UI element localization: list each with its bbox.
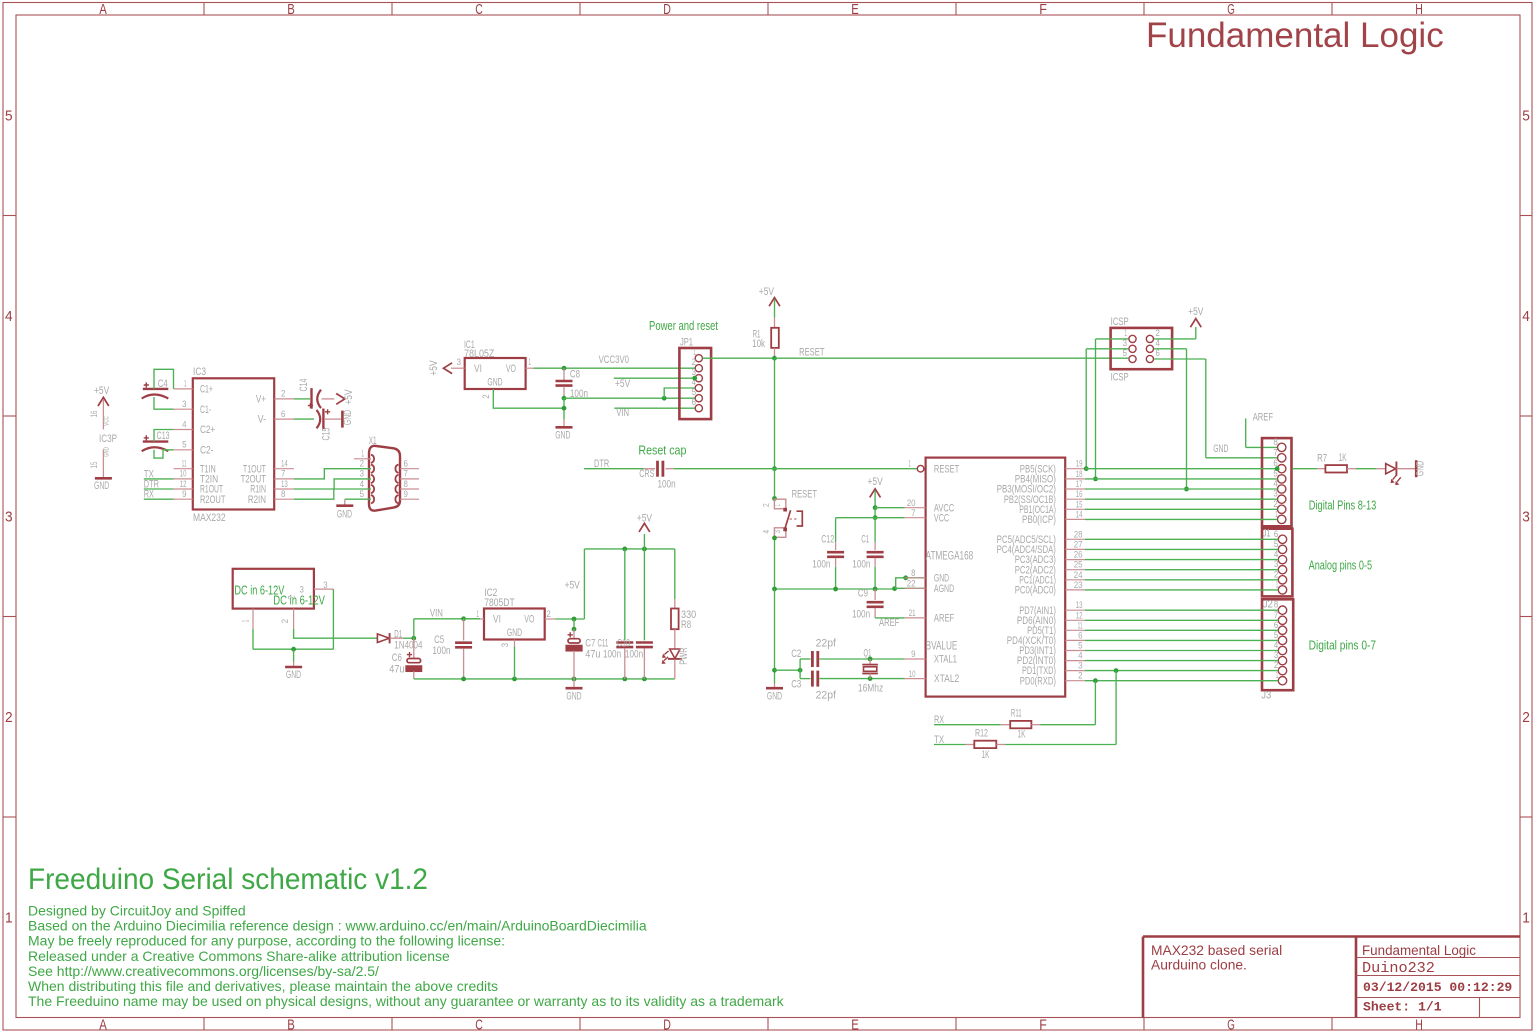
svg-text:4: 4	[762, 529, 771, 533]
svg-text:XTAL1: XTAL1	[934, 654, 957, 666]
svg-text:F: F	[1039, 1, 1047, 18]
svg-text:B: B	[287, 1016, 295, 1033]
svg-text:MAX232: MAX232	[193, 512, 226, 524]
svg-text:C12: C12	[821, 534, 834, 546]
svg-text:VIN: VIN	[616, 407, 629, 419]
svg-text:1K: 1K	[1339, 452, 1347, 464]
svg-text:AREF: AREF	[1253, 412, 1273, 424]
svg-text:100n: 100n	[658, 479, 676, 491]
svg-text:5: 5	[5, 108, 13, 125]
svg-text:Fundamental Logic: Fundamental Logic	[1362, 943, 1476, 958]
svg-text:R7: R7	[1317, 453, 1327, 465]
svg-text:100n: 100n	[432, 645, 450, 657]
svg-text:+5V: +5V	[428, 360, 440, 376]
svg-text:1: 1	[5, 910, 13, 927]
svg-text:1: 1	[529, 357, 532, 368]
svg-text:+5V: +5V	[343, 389, 355, 405]
svg-text:Duino232: Duino232	[1362, 959, 1435, 977]
svg-text:1: 1	[1522, 910, 1530, 927]
svg-text:1K: 1K	[982, 749, 990, 761]
svg-text:+5V: +5V	[94, 385, 110, 397]
svg-text:2: 2	[1522, 709, 1530, 726]
svg-text:H: H	[1415, 1016, 1423, 1033]
svg-text:GND: GND	[507, 627, 522, 639]
svg-text:Q1: Q1	[864, 648, 872, 660]
svg-text:21: 21	[909, 608, 916, 619]
svg-text:3: 3	[300, 585, 304, 596]
svg-text:R12: R12	[975, 727, 988, 739]
svg-text:1: 1	[1276, 579, 1279, 590]
svg-text:5: 5	[1522, 108, 1530, 125]
svg-text:+5V: +5V	[637, 513, 653, 525]
svg-text:8: 8	[281, 489, 285, 500]
svg-text:GND: GND	[104, 447, 111, 457]
svg-text:D: D	[663, 1016, 671, 1033]
svg-text:Analog pins 0-5: Analog pins 0-5	[1309, 558, 1373, 573]
svg-text:C1: C1	[861, 534, 869, 546]
svg-text:1: 1	[184, 379, 187, 390]
svg-text:8: 8	[911, 568, 915, 579]
svg-text:4: 4	[5, 308, 13, 325]
svg-text:GND: GND	[555, 430, 570, 442]
svg-text:C2-: C2-	[200, 444, 214, 456]
svg-text:CRS: CRS	[639, 468, 654, 480]
svg-text:J3: J3	[1261, 690, 1271, 702]
svg-text:+5V: +5V	[615, 378, 631, 390]
svg-text:3: 3	[1522, 509, 1530, 526]
svg-text:1: 1	[477, 609, 480, 620]
svg-text:PC0(ADC0): PC0(ADC0)	[1015, 585, 1056, 597]
svg-text:C13: C13	[157, 430, 170, 442]
svg-text:VCC: VCC	[104, 416, 111, 426]
svg-text:Sheet: 1/1: Sheet: 1/1	[1363, 1000, 1442, 1015]
svg-text:E: E	[851, 1016, 859, 1033]
svg-text:C3: C3	[791, 679, 801, 691]
svg-text:3: 3	[5, 509, 13, 526]
svg-text:7: 7	[1273, 447, 1277, 458]
svg-text:PWR: PWR	[678, 647, 690, 664]
svg-text:14: 14	[1076, 509, 1083, 520]
svg-text:VCC3V0: VCC3V0	[599, 354, 629, 366]
svg-text:F: F	[1039, 1016, 1047, 1033]
svg-text:22pf: 22pf	[816, 690, 837, 702]
svg-text:3: 3	[457, 357, 461, 368]
svg-text:VI: VI	[493, 614, 501, 626]
svg-text:Fundamental Logic: Fundamental Logic	[1146, 16, 1444, 55]
svg-text:1: 1	[909, 459, 912, 470]
svg-text:5: 5	[182, 440, 186, 451]
svg-text:C1+: C1+	[200, 384, 213, 396]
svg-text:C2+: C2+	[200, 424, 215, 436]
svg-text:1N4004: 1N4004	[394, 640, 422, 652]
svg-text:4: 4	[1522, 308, 1530, 325]
svg-text:PD0(RXD): PD0(RXD)	[1020, 675, 1056, 687]
svg-text:22pf: 22pf	[816, 638, 837, 650]
svg-text:IC3P: IC3P	[99, 433, 117, 445]
svg-text:A: A	[99, 1, 107, 18]
svg-text:Based on the Arduino Diecimili: Based on the Arduino Diecimilia referenc…	[28, 918, 647, 934]
svg-text:V-: V-	[258, 414, 267, 426]
svg-text:Power and reset: Power and reset	[649, 318, 718, 333]
svg-text:Designed by CircuitJoy and Spi: Designed by CircuitJoy and Spiffed	[28, 903, 246, 919]
svg-text:GND: GND	[94, 480, 109, 492]
svg-text:JP1: JP1	[680, 337, 693, 349]
svg-text:AGND: AGND	[934, 583, 954, 595]
svg-text:5: 5	[360, 489, 364, 500]
svg-text:6: 6	[692, 397, 696, 408]
svg-text:G: G	[1227, 1016, 1235, 1033]
svg-text:The Freeduino name may be used: The Freeduino name may be used on physic…	[28, 993, 785, 1009]
svg-text:D: D	[663, 1, 671, 18]
svg-text:C15: C15	[321, 428, 333, 441]
svg-text:DTR: DTR	[594, 458, 609, 470]
svg-text:GND: GND	[1213, 443, 1228, 455]
svg-text:9: 9	[404, 489, 408, 500]
svg-text:9: 9	[911, 649, 915, 660]
svg-text:RESET: RESET	[799, 347, 825, 359]
svg-text:V+: V+	[256, 394, 266, 406]
svg-text:PB0(ICP): PB0(ICP)	[1022, 514, 1056, 526]
svg-text:RESET: RESET	[792, 489, 818, 501]
svg-text:See http://www.creativecommons: See http://www.creativecommons.org/licen…	[28, 963, 379, 979]
svg-text:R8: R8	[681, 619, 691, 631]
svg-text:VIN: VIN	[430, 608, 443, 620]
svg-text:16Mhz: 16Mhz	[858, 683, 883, 695]
svg-text:BVALUE: BVALUE	[926, 640, 958, 652]
svg-text:J2: J2	[1263, 599, 1273, 611]
svg-text:AREF: AREF	[934, 613, 954, 625]
svg-text:1K: 1K	[1018, 729, 1026, 741]
svg-text:3: 3	[182, 399, 186, 410]
svg-text:15: 15	[89, 462, 100, 469]
svg-text:Freeduino Serial schematic v1.: Freeduino Serial schematic v1.2	[28, 863, 428, 896]
svg-text:2: 2	[481, 394, 492, 398]
svg-text:10: 10	[909, 669, 916, 680]
svg-text:A: A	[99, 1016, 107, 1033]
svg-text:XTAL2: XTAL2	[934, 673, 959, 685]
svg-text:C9: C9	[858, 588, 868, 600]
svg-text:GND: GND	[767, 691, 782, 703]
svg-text:7: 7	[911, 508, 915, 519]
svg-text:47u: 47u	[585, 649, 600, 661]
svg-text:R2OUT: R2OUT	[200, 494, 226, 506]
svg-text:4: 4	[182, 419, 186, 430]
svg-text:ICSP: ICSP	[1111, 316, 1129, 328]
svg-text:2: 2	[281, 389, 285, 400]
svg-text:B: B	[287, 1, 295, 18]
svg-text:100n: 100n	[852, 608, 870, 620]
svg-text:2: 2	[1078, 671, 1082, 682]
svg-text:8: 8	[1273, 437, 1277, 448]
svg-text:VCC: VCC	[934, 513, 949, 525]
svg-text:Released under a Creative Comm: Released under a Creative Commons Share-…	[28, 948, 450, 964]
svg-text:23: 23	[1074, 580, 1083, 591]
svg-text:78L05Z: 78L05Z	[464, 348, 495, 360]
svg-text:100n: 100n	[625, 649, 643, 661]
svg-text:E: E	[851, 1, 859, 18]
svg-text:C6: C6	[392, 652, 402, 664]
svg-text:1: 1	[241, 620, 252, 623]
svg-text:C1-: C1-	[200, 404, 211, 416]
svg-text:C14: C14	[298, 379, 310, 392]
svg-text:GND: GND	[342, 410, 354, 425]
svg-text:100n: 100n	[603, 649, 621, 661]
svg-text:R2IN: R2IN	[248, 494, 266, 506]
svg-text:VO: VO	[524, 614, 534, 626]
svg-text:VO: VO	[506, 363, 516, 375]
svg-text:Aurduino clone.: Aurduino clone.	[1151, 958, 1247, 973]
svg-text:5: 5	[1123, 348, 1127, 359]
svg-text:C: C	[475, 1016, 483, 1033]
svg-text:1: 1	[1275, 509, 1278, 520]
svg-text:C8: C8	[570, 369, 580, 381]
svg-text:7805DT: 7805DT	[484, 597, 515, 609]
svg-text:J1: J1	[1263, 528, 1271, 540]
svg-text:C: C	[475, 1, 483, 18]
svg-text:03/12/2015 00:12:29: 03/12/2015 00:12:29	[1363, 980, 1512, 995]
svg-text:2: 2	[5, 709, 13, 726]
svg-text:22: 22	[907, 579, 916, 590]
svg-text:+5V: +5V	[759, 286, 775, 298]
svg-text:GND: GND	[337, 509, 352, 521]
svg-text:GND: GND	[487, 377, 502, 389]
svg-text:ICSP: ICSP	[1111, 372, 1129, 384]
svg-text:3: 3	[773, 529, 782, 533]
svg-text:IC3: IC3	[193, 366, 206, 378]
svg-text:VI: VI	[474, 363, 482, 375]
svg-text:AREF: AREF	[879, 617, 899, 629]
svg-text:47u: 47u	[389, 664, 404, 676]
svg-text:ATMEGA168: ATMEGA168	[926, 551, 974, 563]
svg-text:10k: 10k	[752, 338, 765, 350]
svg-text:May be freely reproduced for a: May be freely reproduced for any purpose…	[28, 933, 505, 949]
svg-text:GND: GND	[1415, 461, 1427, 476]
svg-text:3: 3	[500, 643, 511, 647]
svg-text:6: 6	[1156, 348, 1160, 359]
svg-text:+5V: +5V	[1188, 306, 1204, 318]
svg-text:100n: 100n	[852, 559, 870, 571]
svg-text:2: 2	[287, 595, 298, 599]
svg-text:+5V: +5V	[868, 476, 884, 488]
svg-text:Digital Pins 8-13: Digital Pins 8-13	[1309, 498, 1377, 513]
svg-text:When distributing this file an: When distributing this file and derivati…	[28, 978, 498, 994]
svg-text:6: 6	[281, 409, 285, 420]
svg-text:R11: R11	[1011, 708, 1022, 720]
svg-text:MAX232 based serial: MAX232 based serial	[1151, 943, 1282, 958]
svg-text:1: 1	[1276, 670, 1279, 681]
svg-text:16: 16	[89, 411, 100, 418]
svg-text:2: 2	[280, 619, 291, 623]
svg-text:GND: GND	[566, 691, 581, 703]
svg-text:RESET: RESET	[934, 464, 960, 476]
svg-text:C2: C2	[791, 648, 801, 660]
svg-text:2: 2	[762, 503, 771, 507]
svg-text:Digital pins 0-7: Digital pins 0-7	[1309, 638, 1377, 653]
svg-text:1: 1	[773, 504, 782, 506]
svg-text:100n: 100n	[812, 559, 830, 571]
svg-text:+5V: +5V	[565, 580, 581, 592]
svg-text:GND: GND	[286, 669, 301, 681]
svg-text:Reset cap: Reset cap	[638, 443, 686, 458]
svg-text:9: 9	[182, 489, 186, 500]
